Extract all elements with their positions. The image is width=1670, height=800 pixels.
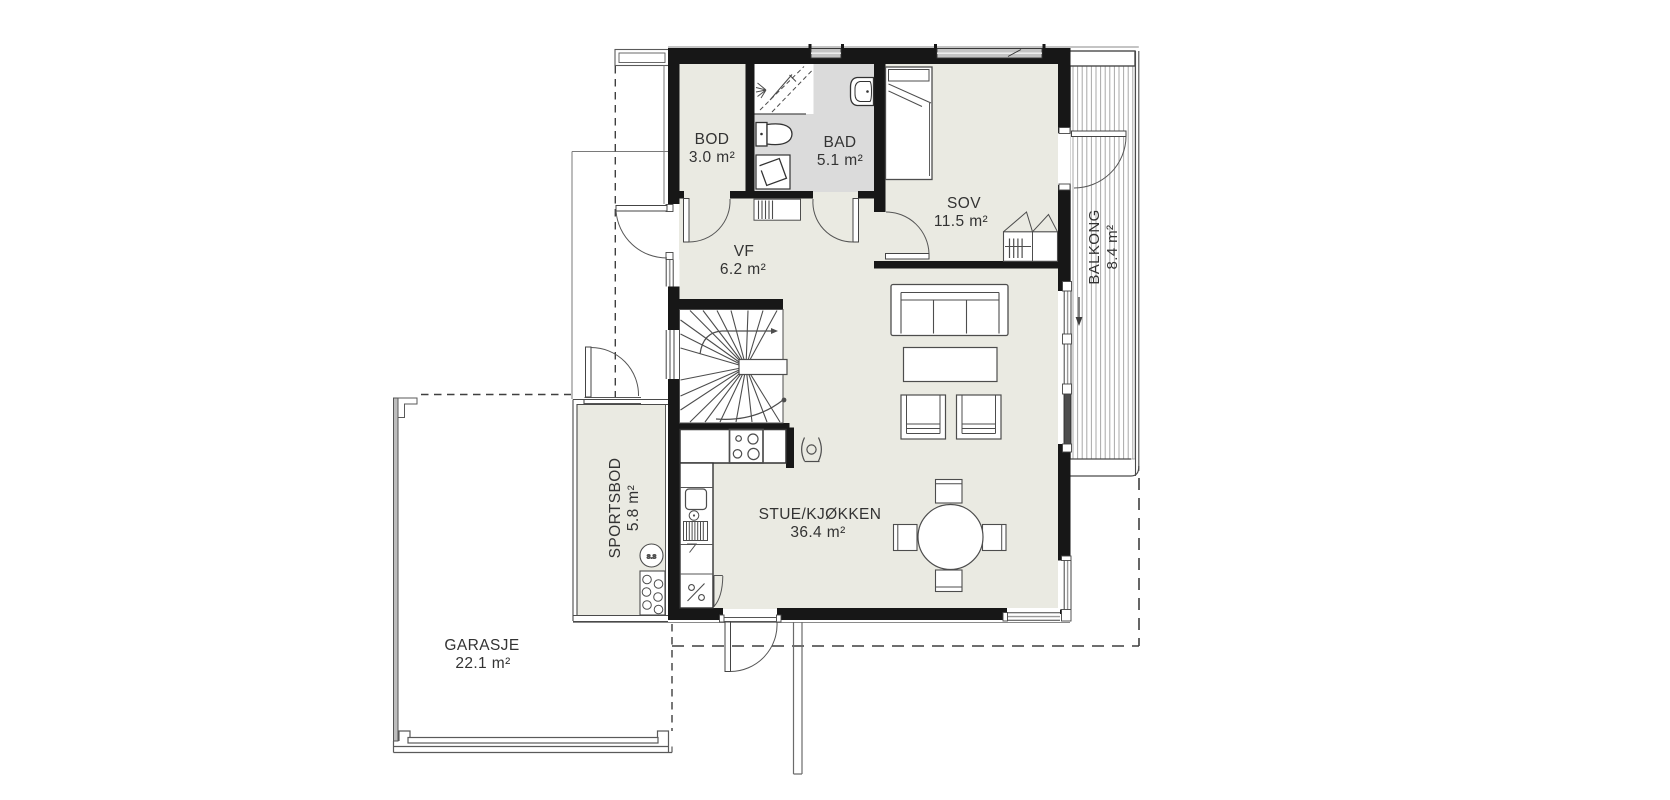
svg-text:VF: VF [734,243,755,260]
svg-text:6.2 m²: 6.2 m² [720,261,766,278]
svg-text:SOV: SOV [947,195,981,212]
svg-text:s.s: s.s [647,552,657,561]
svg-text:BAD: BAD [823,134,856,151]
svg-text:SPORTSBOD: SPORTSBOD [607,458,624,559]
svg-text:BALKONG: BALKONG [1086,209,1103,284]
svg-text:BOD: BOD [695,131,730,148]
svg-text:5.8 m²: 5.8 m² [625,485,642,531]
svg-text:8.4 m²: 8.4 m² [1104,225,1121,270]
svg-text:STUE/KJØKKEN: STUE/KJØKKEN [759,506,882,523]
svg-text:3.0 m²: 3.0 m² [689,149,735,166]
svg-text:11.5 m²: 11.5 m² [934,213,988,230]
svg-text:GARASJE: GARASJE [444,637,519,654]
svg-text:5.1 m²: 5.1 m² [817,152,863,169]
svg-text:22.1 m²: 22.1 m² [455,655,510,672]
svg-text:36.4 m²: 36.4 m² [790,524,845,541]
